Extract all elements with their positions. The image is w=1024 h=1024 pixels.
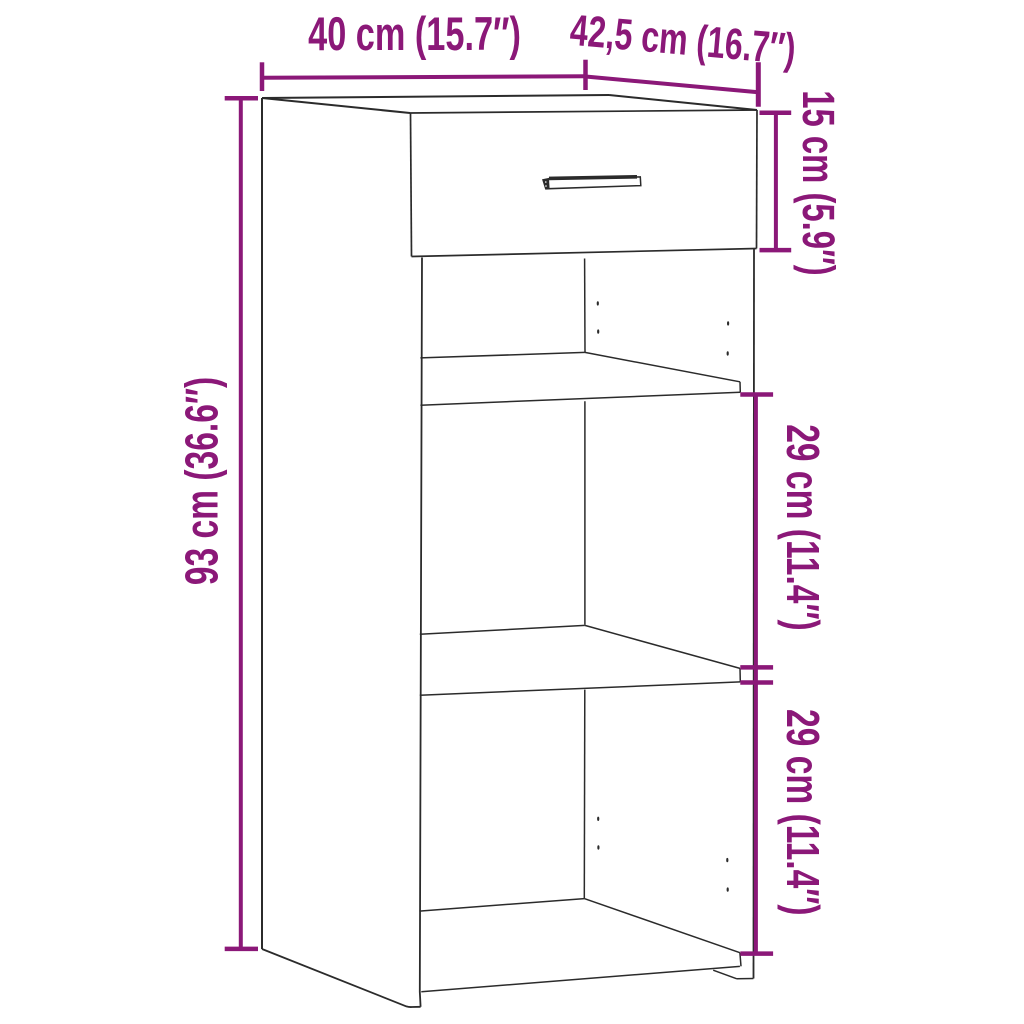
svg-text:93 cm (36.6″): 93 cm (36.6″) (176, 377, 227, 585)
svg-text:15 cm (5.9″): 15 cm (5.9″) (793, 90, 843, 275)
svg-text:29 cm (11.4″): 29 cm (11.4″) (777, 424, 828, 630)
svg-text:29 cm (11.4″): 29 cm (11.4″) (777, 709, 828, 915)
svg-text:40 cm (15.7″): 40 cm (15.7″) (308, 7, 521, 60)
